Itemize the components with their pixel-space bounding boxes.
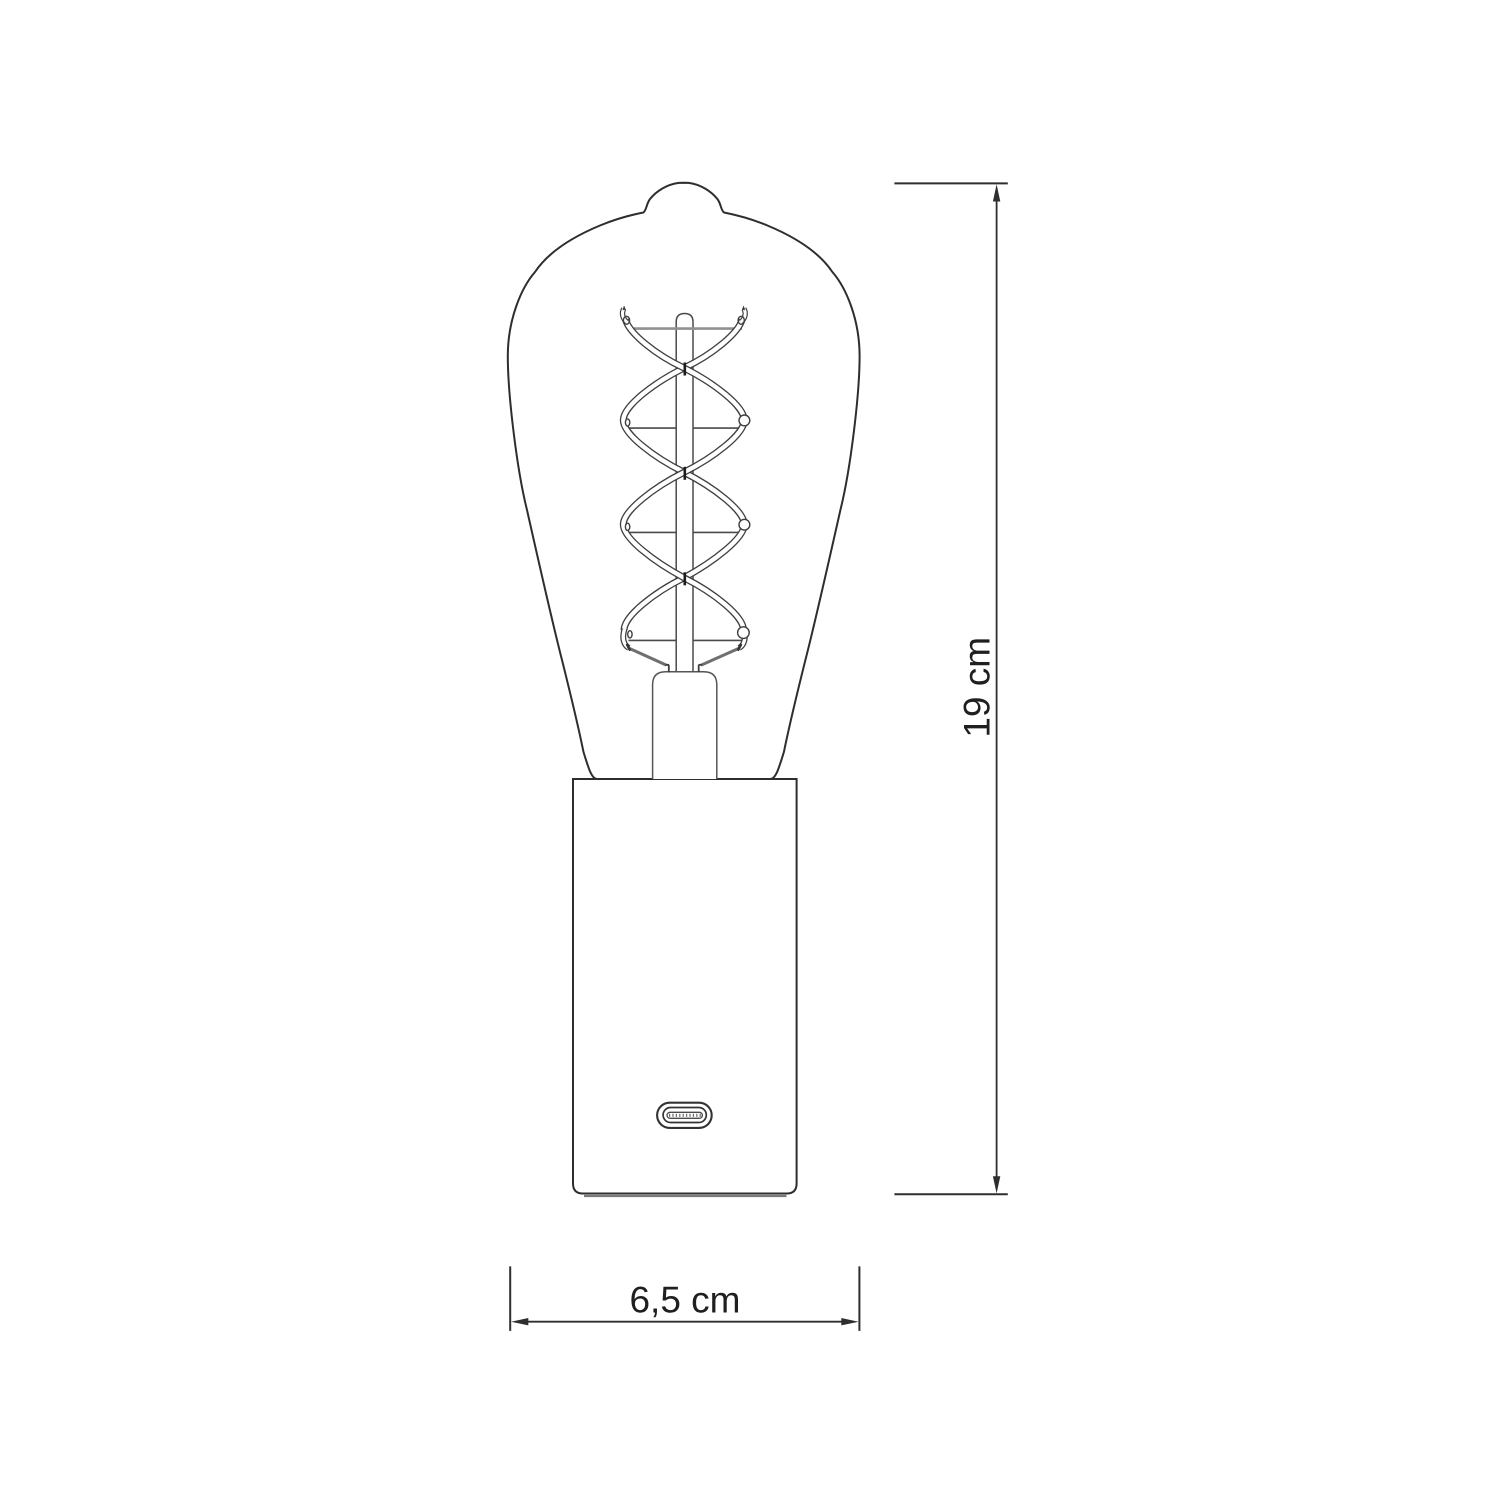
svg-text:6,5 cm: 6,5 cm [629, 1280, 740, 1321]
svg-text:19 cm: 19 cm [956, 637, 997, 738]
